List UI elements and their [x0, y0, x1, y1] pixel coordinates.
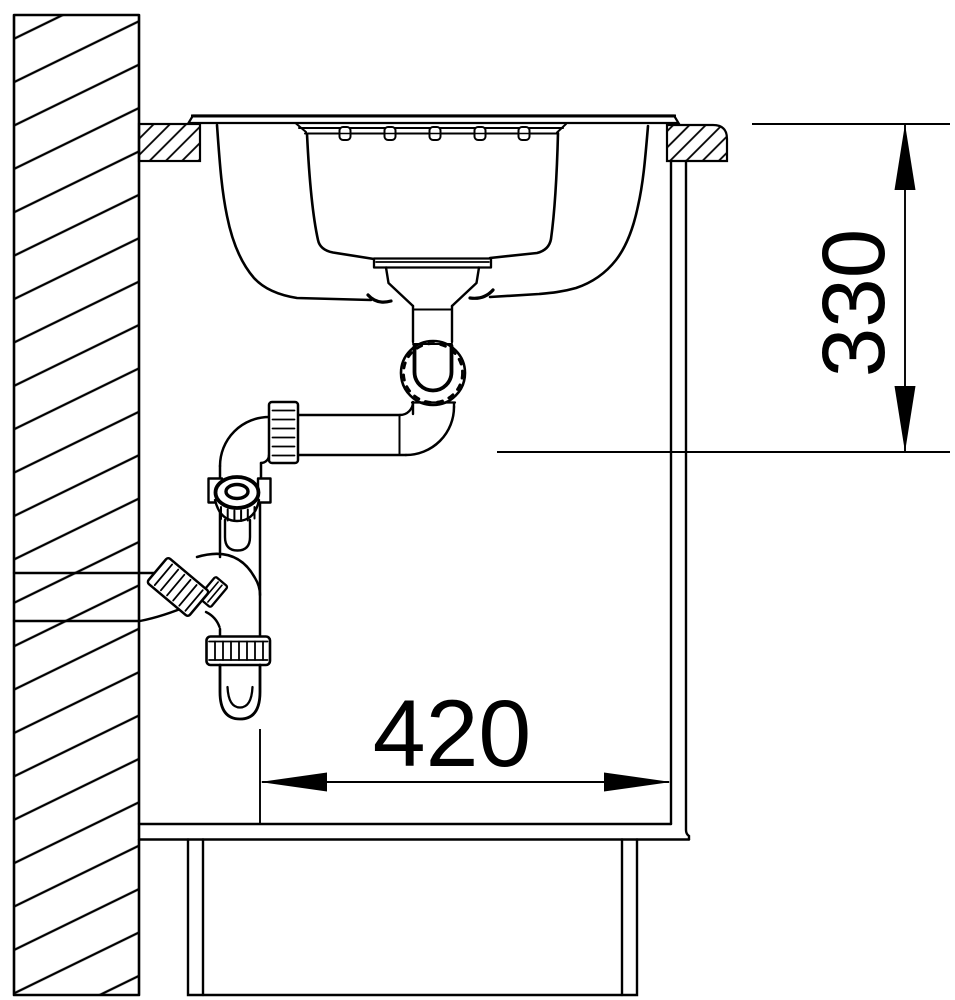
union-nut-horizontal	[269, 402, 298, 463]
arrow-left-icon	[260, 773, 327, 792]
installation-drawing: 330 420	[0, 0, 955, 1000]
drain-cup-right	[452, 268, 479, 307]
branch-union-nut	[147, 557, 210, 617]
cabinet-side-outer	[686, 161, 689, 840]
dimension-330-label: 330	[803, 229, 903, 378]
base-cabinet	[139, 161, 689, 995]
worktop-left-section	[139, 124, 200, 161]
wall-hatching	[14, 15, 139, 995]
elbow-right-inner	[400, 402, 413, 415]
trap-bottom-inner	[228, 687, 253, 708]
arrow-down-icon	[895, 386, 916, 452]
trap-bottom-outer	[220, 665, 260, 719]
drawing-canvas: 330 420	[0, 0, 955, 1000]
arrow-right-icon	[604, 773, 671, 792]
bowl-right	[490, 133, 558, 258]
shell-right	[490, 126, 648, 297]
inset-sink-bowl	[217, 124, 648, 343]
plinth-outline	[188, 840, 637, 996]
union-nut-lower	[207, 637, 271, 666]
knob-center-hole	[226, 485, 248, 499]
dimension-330: 330	[497, 124, 950, 452]
dimension-420-label: 420	[373, 681, 532, 787]
bowl-left	[307, 134, 374, 259]
arrow-up-icon	[895, 124, 916, 190]
dimension-420: 420	[260, 681, 671, 823]
branch-elbow-inner	[206, 612, 220, 627]
wall	[14, 15, 139, 995]
shell-left	[217, 125, 371, 300]
coupling-nut	[401, 341, 465, 405]
worktop-right-section	[667, 125, 727, 161]
drain-siphon-trap	[147, 341, 465, 719]
trap-barrel	[225, 520, 250, 551]
drain-flange	[374, 259, 491, 268]
elbow-left-outer	[220, 417, 269, 466]
